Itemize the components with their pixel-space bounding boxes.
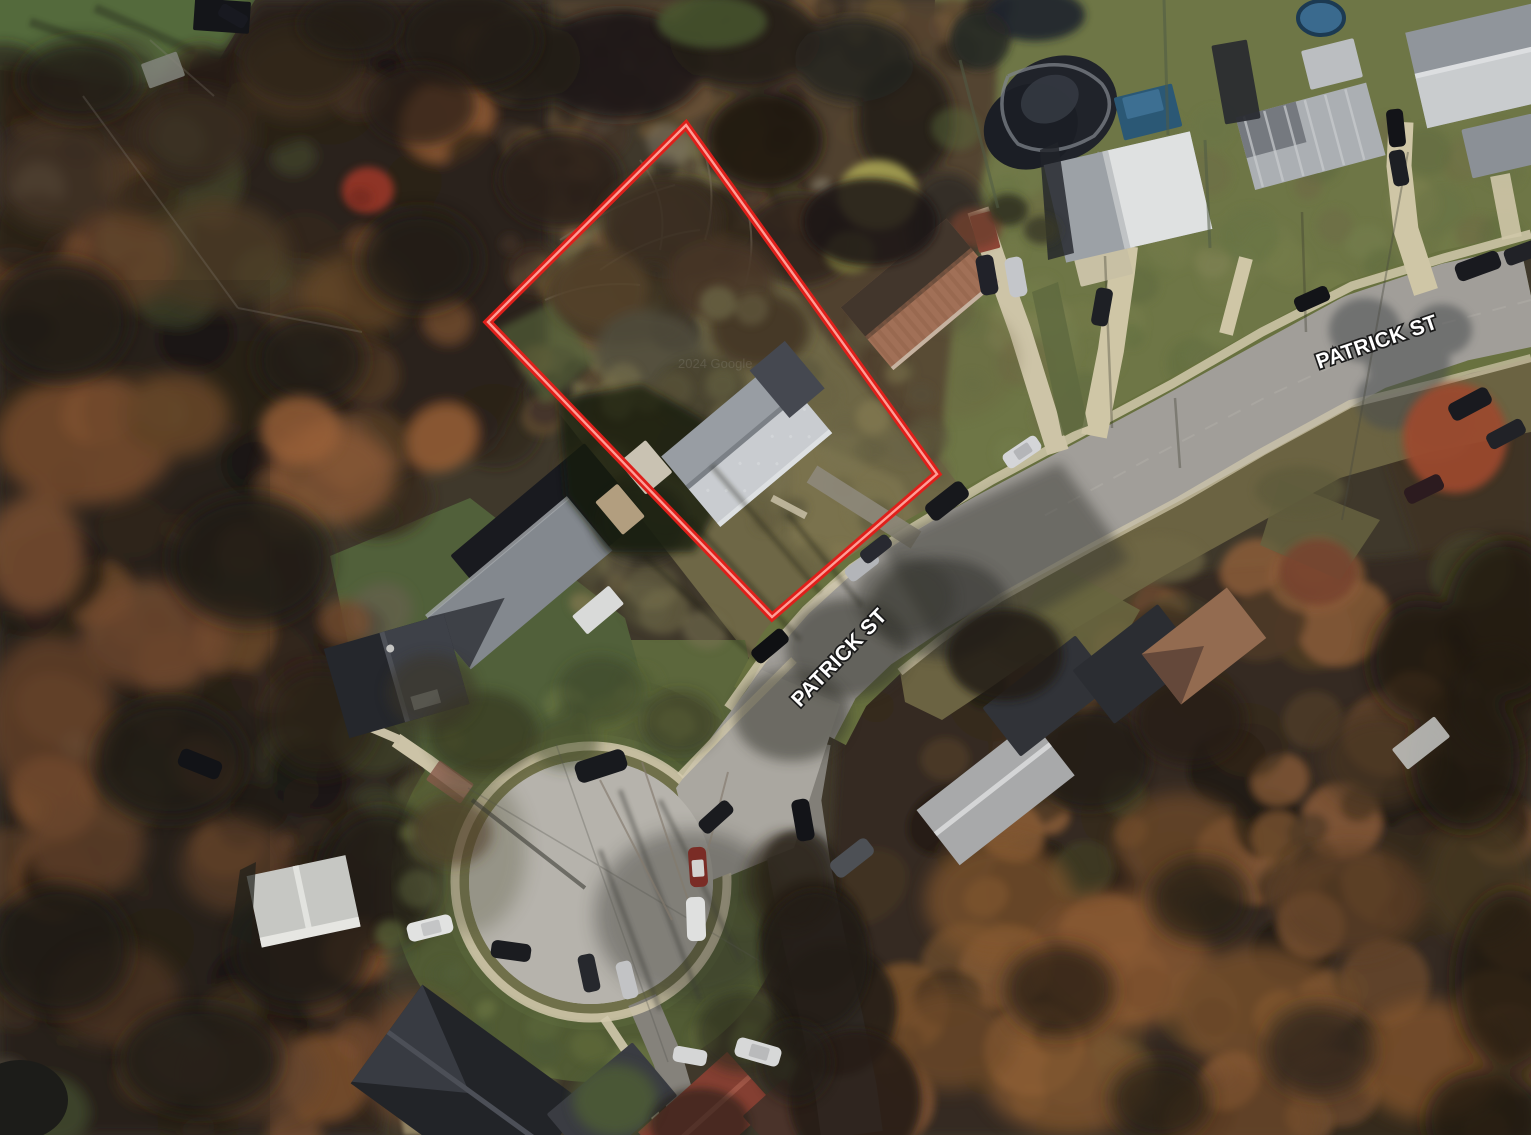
svg-text:2024 Google: 2024 Google: [678, 356, 752, 371]
